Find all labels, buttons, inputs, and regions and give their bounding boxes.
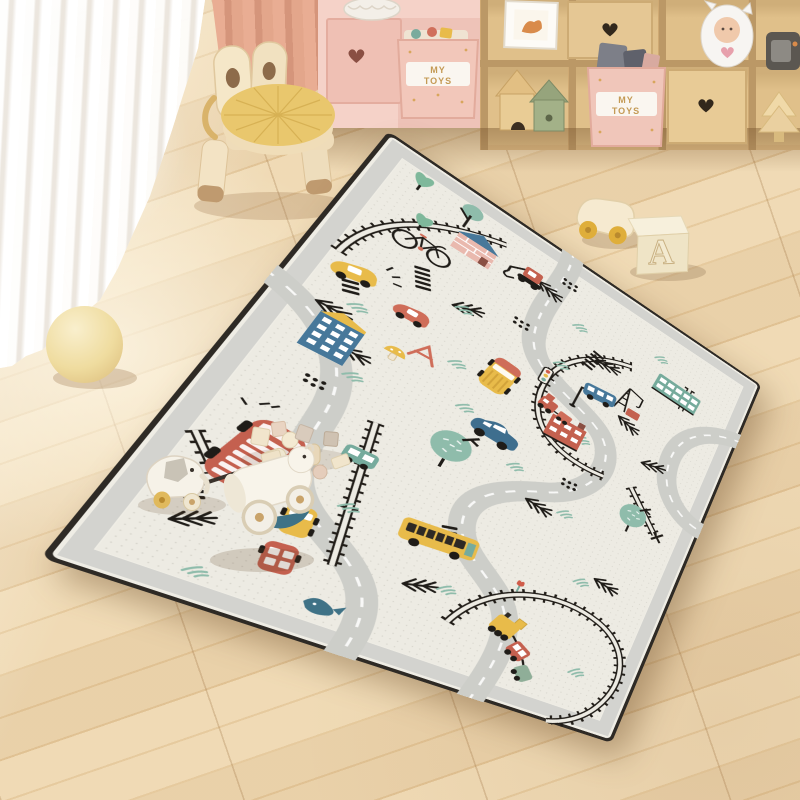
playroom-photo: MY TOYS MY TOYS — [0, 0, 800, 800]
block-letter-A: A — [647, 231, 674, 272]
toys-layer: A — [0, 0, 800, 800]
